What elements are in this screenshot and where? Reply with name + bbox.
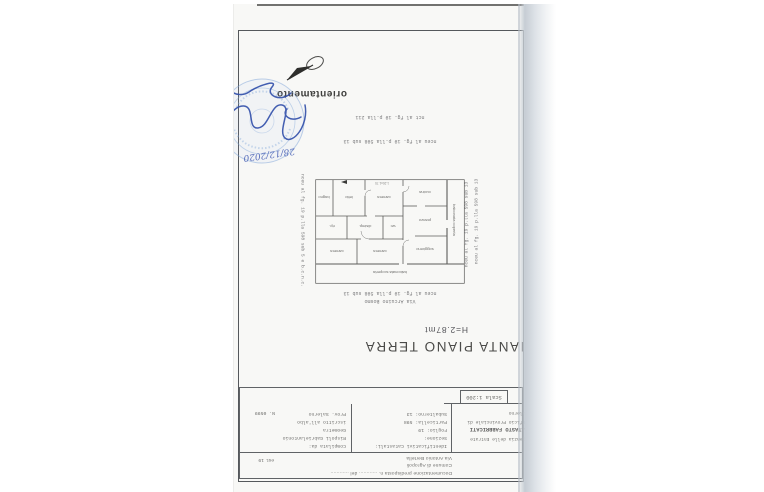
scanned-document-view: Documentazione predisposta n. ..........… (0, 0, 764, 492)
neighbor-caption-right: nceu al fg. 19 p.lla 598 sub 5 e b.c.n.c… (300, 156, 305, 306)
cad-line-sezione: Sezione: (352, 433, 447, 441)
neighbor-caption-below-1: nceu al fg. 19 p.lla 598 sub 13 (315, 138, 465, 144)
street-line: Via Antonio Bertella (406, 455, 452, 460)
rotated-document-content: Documentazione predisposta n. ..........… (239, 31, 523, 481)
scale-box: Scala 1:200 (460, 390, 508, 404)
room-label: disimp. (359, 224, 372, 229)
compiler-line-title: Geometra (237, 425, 346, 433)
room-label: rip. (329, 224, 335, 229)
cad-line-foglio: Foglio: 19 (352, 425, 447, 433)
plan-entry-arrow-icon (341, 180, 347, 184)
floor-plan-svg: balconata scoperta soggiorno pranzo cuci… (315, 179, 465, 284)
room-label: camera (373, 249, 387, 254)
floor-plan: balconata scoperta soggiorno pranzo cuci… (315, 179, 465, 284)
row1-right-note: est. 19 (258, 457, 274, 462)
signature-icon (233, 70, 315, 153)
neighbor-caption-below-2: nct al fg. 19 p.lla 211 (315, 114, 465, 120)
room-label: pranzo (418, 218, 431, 223)
compiler-line-prov: Prov. Salerno (237, 409, 346, 417)
ceiling-height-note: H=2.87mt (425, 325, 469, 335)
room-label: letto (344, 195, 352, 200)
drawing-frame: Documentazione predisposta n. ..........… (238, 30, 524, 482)
docfa-protocol-line: Documentazione predisposta n. ..........… (330, 470, 452, 475)
dimension-note: 1.20x1.70 (375, 181, 389, 185)
room-label: balconata scoperta (372, 270, 407, 275)
room-label: cucina (418, 190, 430, 195)
page-fold-shadow (518, 4, 556, 492)
cadastral-ids-cell: Identificativi Catastali: Sezione: Fogli… (352, 404, 452, 452)
room-label: bagno (318, 195, 330, 200)
room-label: camera (377, 195, 391, 200)
paper-sheet: Documentazione predisposta n. ..........… (233, 4, 556, 492)
compiler-line-header: Compilata da: (237, 441, 346, 449)
page-title: PIANTA PIANO TERRA (364, 339, 535, 354)
room-label: camera (330, 249, 344, 254)
cadastral-caption: nceu al fg. 19 p.lla 598 sub 13 (315, 290, 465, 296)
page-edge-line (257, 4, 524, 6)
compiler-line-name: Rispoli Gabrielantonio (237, 433, 346, 441)
cad-line-particella: Particella: 598 (352, 417, 447, 425)
room-label: wc (391, 224, 396, 229)
balcony-left-label: balconata coperta (452, 204, 457, 237)
compiler-cell: Compilata da: Rispoli Gabrielantonio Geo… (237, 404, 352, 452)
cad-line-header: Identificativi Catastali: (352, 441, 447, 449)
compiler-register-number: N. 0599 (255, 408, 275, 416)
title-block-row1: Documentazione predisposta n. ..........… (240, 452, 522, 478)
compiler-line-albo: iscritto all'albo (237, 417, 346, 425)
comune-line: Comune di Agropoli (407, 462, 452, 467)
room-label: soggiorno (415, 247, 433, 252)
neighbor-caption-left-2: nceu al fg. 19 p.lla 598 sub 13 (475, 147, 480, 297)
title-block: Documentazione predisposta n. ..........… (239, 387, 523, 479)
cad-line-subalterno: Subalterno: 13 (352, 409, 447, 417)
street-caption: Via Arcuino Bosmo (315, 298, 465, 304)
neighbor-caption-left-1: nceu al fg. 19 p.lla 598 sub 13 (465, 150, 470, 300)
